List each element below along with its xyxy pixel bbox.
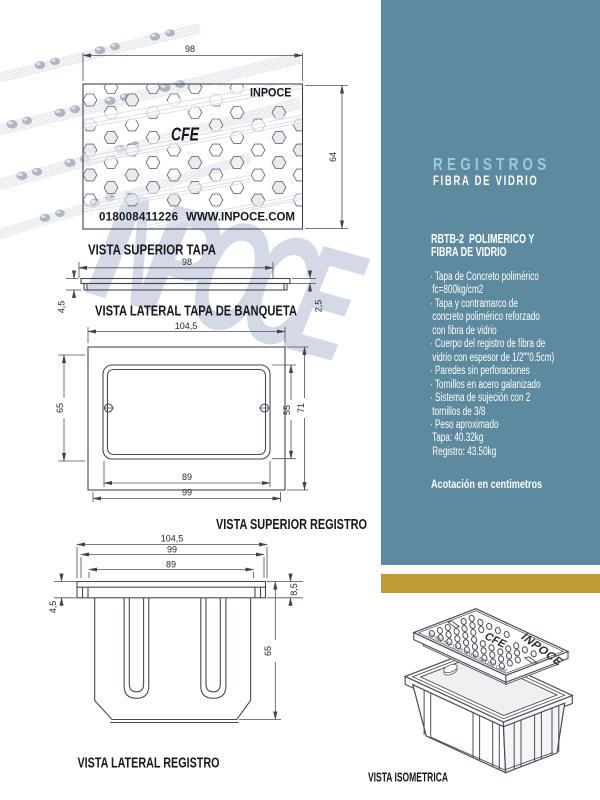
svg-text:99: 99 [182,488,192,498]
svg-text:WWW.INPOCE.COM: WWW.INPOCE.COM [186,212,295,224]
svg-text:VISTA SUPERIOR TAPA: VISTA SUPERIOR TAPA [88,243,216,259]
svg-text:VISTA LATERAL REGISTRO: VISTA LATERAL REGISTRO [78,756,220,772]
svg-text:2,5: 2,5 [314,300,324,313]
svg-text:71: 71 [296,403,306,413]
svg-text:89: 89 [182,472,192,482]
svg-text:89: 89 [166,560,176,570]
svg-text:INPOCE: INPOCE [250,86,292,100]
svg-text:98: 98 [185,44,195,54]
svg-text:104,5: 104,5 [161,534,184,544]
svg-text:018008411226: 018008411226 [99,212,178,224]
svg-text:VISTA SUPERIOR REGISTRO: VISTA SUPERIOR REGISTRO [216,517,367,533]
svg-text:99: 99 [167,545,177,555]
svg-text:98: 98 [182,257,192,267]
svg-text:CFE: CFE [171,125,200,145]
svg-text:65: 65 [263,646,273,656]
svg-text:8,5: 8,5 [289,583,299,596]
svg-text:INPOCE: INPOCE [75,156,380,397]
svg-text:65: 65 [55,403,65,413]
svg-text:4,5: 4,5 [57,301,67,314]
svg-text:VISTA LATERAL TAPA DE BANQUETA: VISTA LATERAL TAPA DE BANQUETA [95,304,297,320]
svg-text:55: 55 [282,405,292,415]
svg-text:64: 64 [328,152,338,162]
svg-text:104,5: 104,5 [175,321,198,331]
svg-text:4,5: 4,5 [48,601,58,614]
